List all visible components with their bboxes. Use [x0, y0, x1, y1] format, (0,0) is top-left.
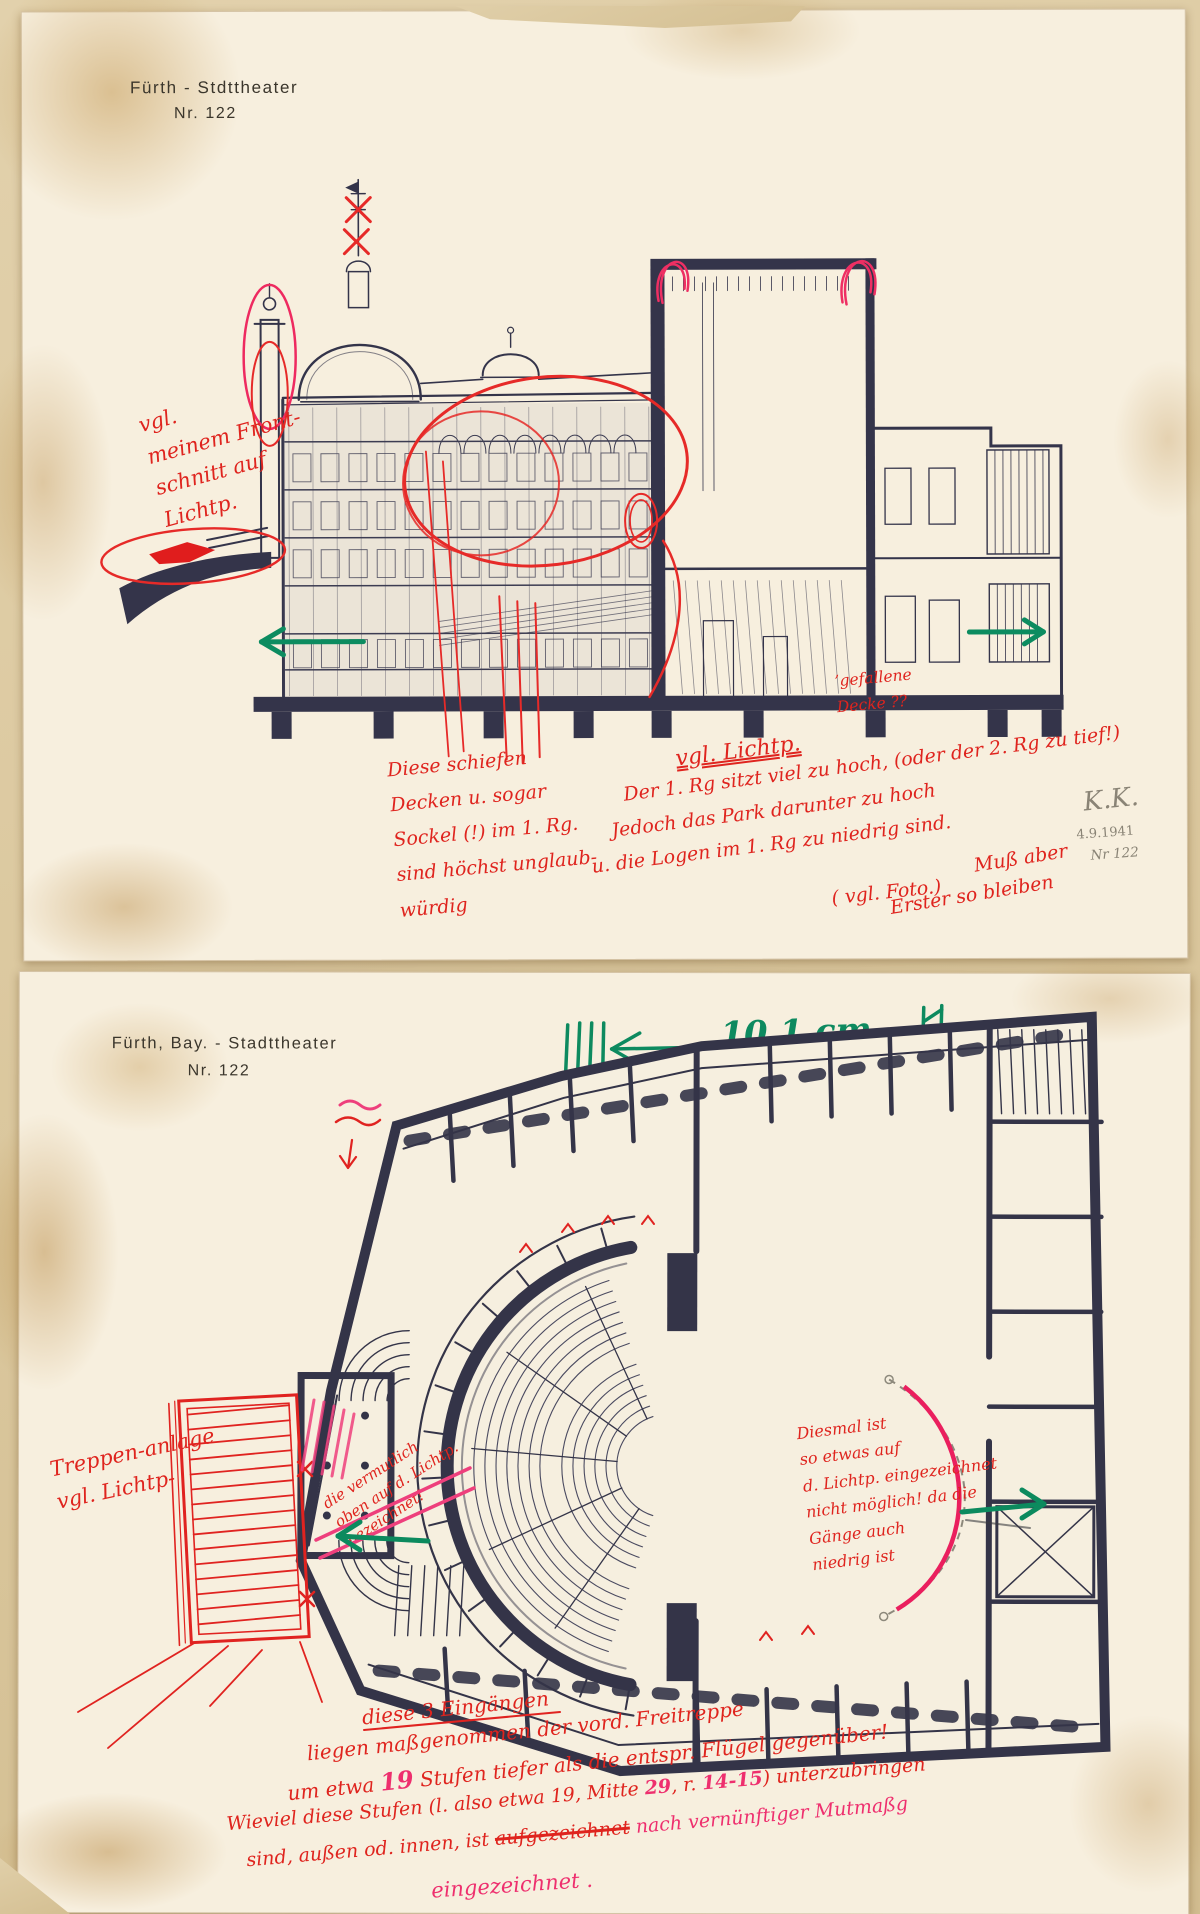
stamp-number: Nr 122	[1090, 844, 1139, 863]
note-ceilings: Diese schiefen Decken u. sogar Sockel (!…	[386, 736, 602, 929]
note-number-pink: 29	[644, 1775, 672, 1799]
paper-stain	[0, 1112, 120, 1392]
stamp-initials: K.K.	[1082, 782, 1140, 818]
paper-stain	[1113, 359, 1200, 519]
paper-stain	[0, 1792, 228, 1912]
green-arrow-right-icon	[969, 620, 1043, 644]
note-struck-word: aufgezeichnet	[494, 1817, 631, 1850]
note-fallen-ceiling: ’gefallene Decke ??	[833, 661, 915, 720]
paper-stain	[14, 842, 234, 973]
note-bottom-line6: eingezeichnet .	[430, 1864, 594, 1907]
sheet-floor-plan: Fürth, Bay. - Stadttheater Nr. 122 10,1 …	[17, 971, 1191, 1914]
note-stage-side: Diesmal ist so etwas auf d. Lichtp. eing…	[795, 1398, 1008, 1579]
paper-stain	[0, 342, 113, 622]
stamp-date: 4.9.1941	[1076, 824, 1135, 843]
sheet1-title-number: Nr. 122	[174, 105, 237, 123]
note-stairs: Treppen-anlage vgl. Lichtp-	[47, 1419, 224, 1517]
sheet1-title: Fürth - Stdttheater	[130, 78, 298, 98]
floor-plan-drawing	[248, 1000, 1149, 1812]
note-text: , r.	[670, 1773, 703, 1798]
plan-walls	[300, 1015, 1106, 1771]
sheet-section-drawing: Fürth - Stdttheater Nr. 122	[21, 8, 1188, 961]
note-number-pink: 14-15	[701, 1767, 763, 1794]
sheet2-title-number: Nr. 122	[188, 1062, 251, 1080]
scanned-archive-page: Fürth - Stdttheater Nr. 122	[0, 0, 1200, 1914]
paper-stain	[622, 0, 862, 81]
note-number-pink: 19	[379, 1764, 415, 1796]
